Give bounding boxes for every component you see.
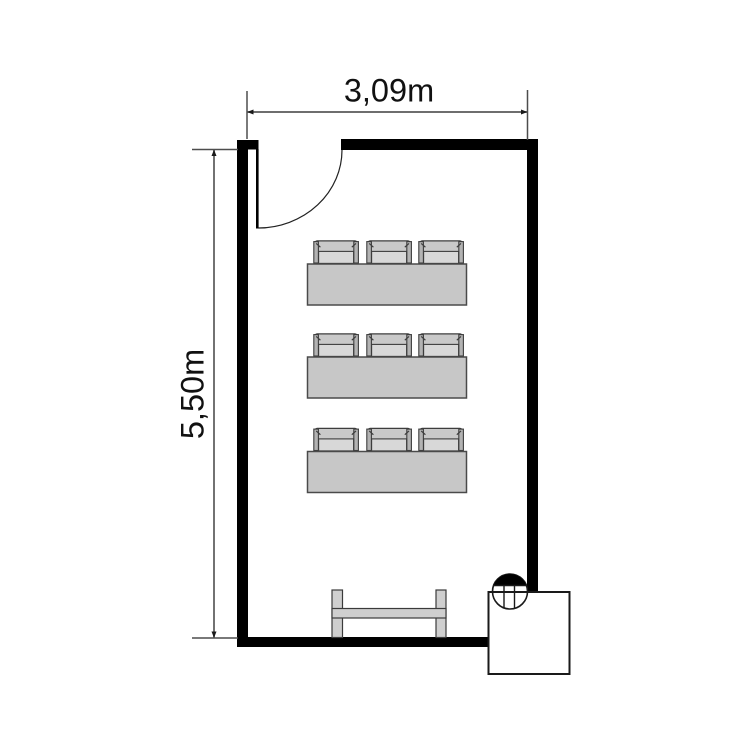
svg-text:5,50m: 5,50m <box>175 349 211 439</box>
svg-text:3,09m: 3,09m <box>344 73 434 109</box>
